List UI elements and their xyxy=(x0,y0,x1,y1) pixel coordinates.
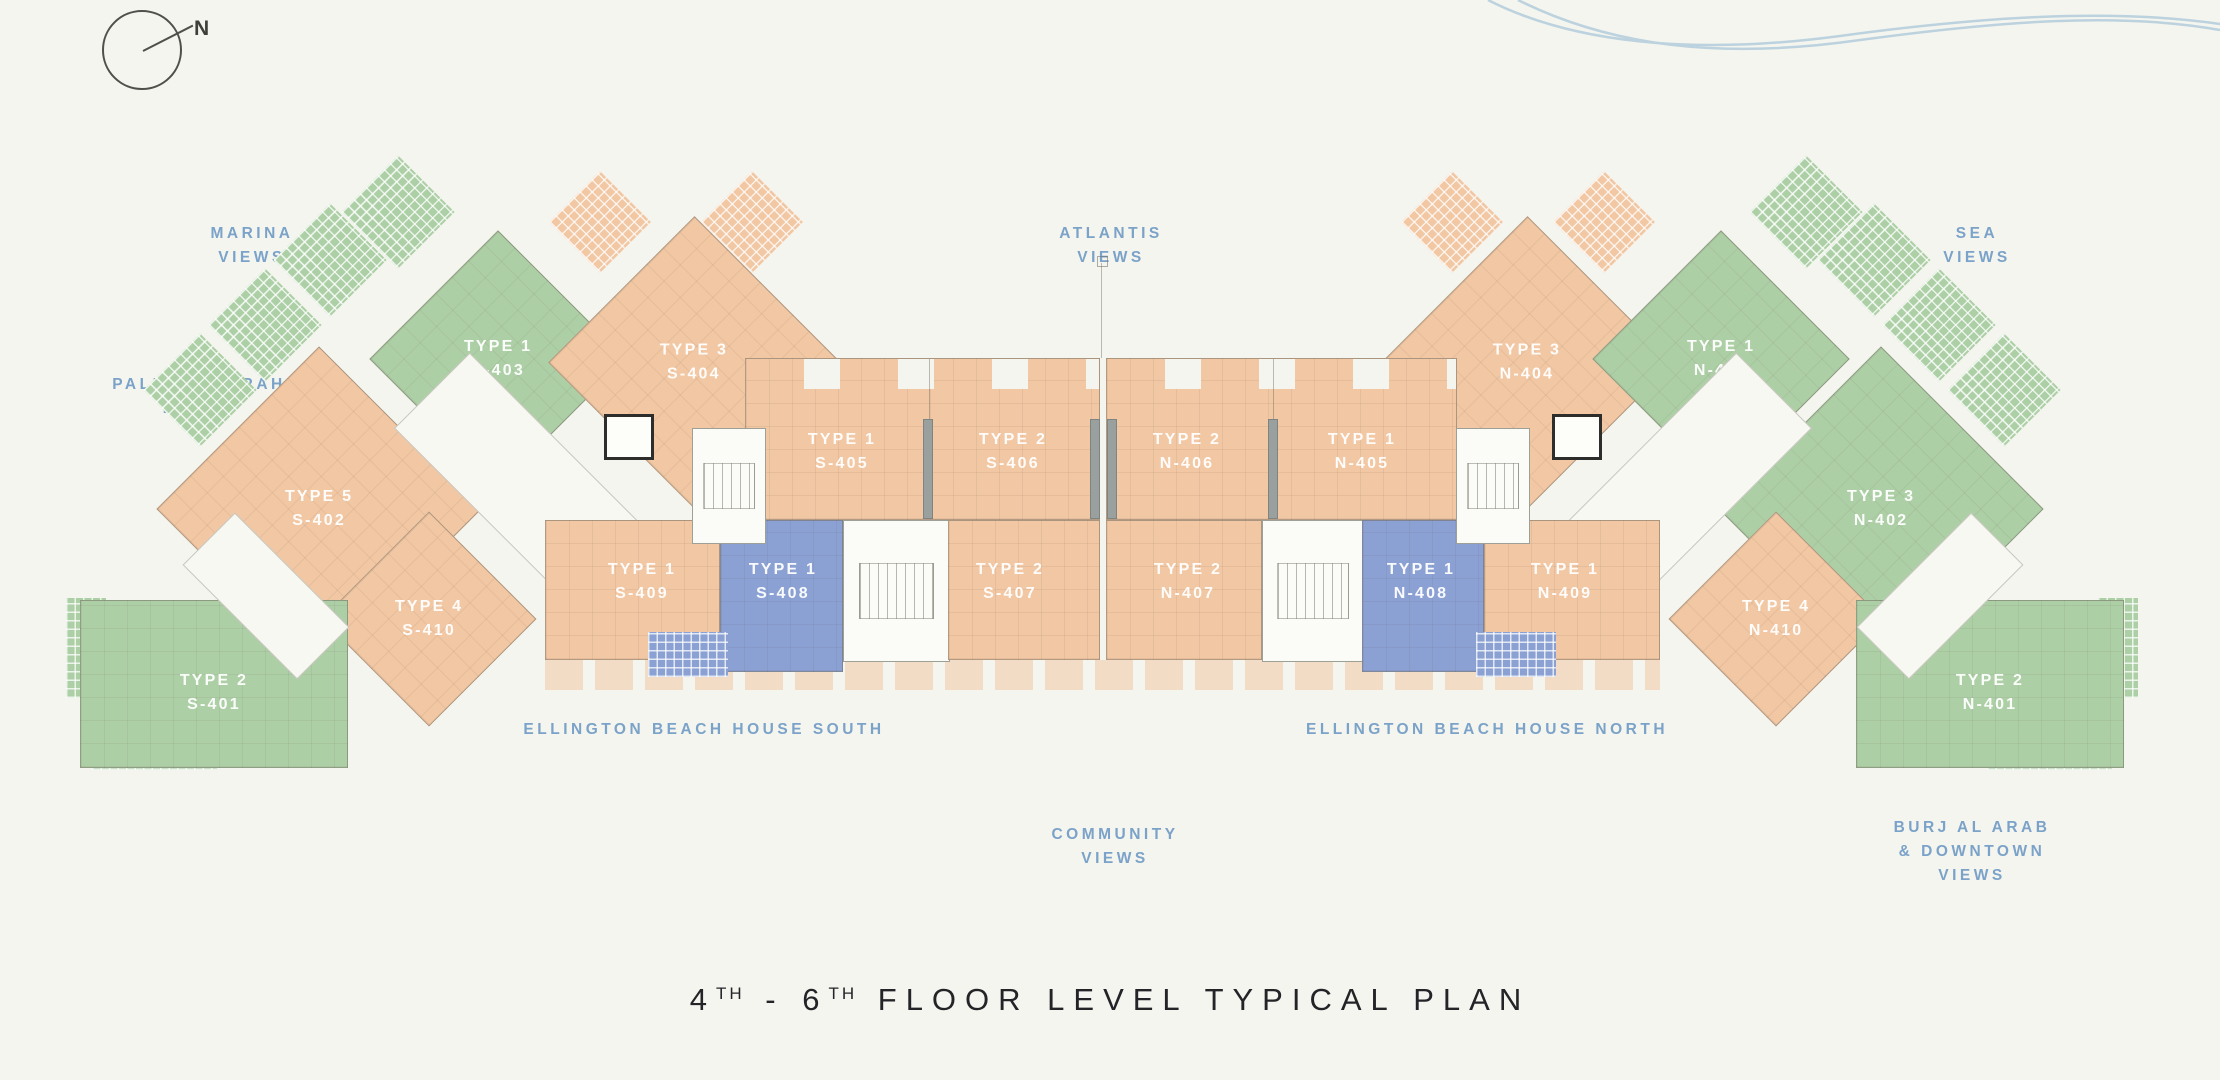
unit-label: TYPE 2S-407 xyxy=(976,558,1044,606)
unit-label: TYPE 3S-404 xyxy=(660,339,728,387)
unit-label: TYPE 1S-409 xyxy=(608,558,676,606)
elevator-shaft xyxy=(1268,419,1278,519)
balcony-checker xyxy=(549,171,651,273)
center-axis-marker xyxy=(1097,256,1108,267)
compass-north-label: N xyxy=(194,17,210,41)
unit-label: TYPE 1S-405 xyxy=(808,428,876,476)
view-label-burj-al-arab: BURJ AL ARAB & DOWNTOWN VIEWS xyxy=(1894,816,2051,888)
unit-label: TYPE 2N-407 xyxy=(1154,558,1222,606)
stair-core xyxy=(692,428,766,544)
coastline-wave xyxy=(1460,0,2220,64)
unit-label: TYPE 1N-408 xyxy=(1387,558,1455,606)
unit-label: TYPE 2S-401 xyxy=(180,669,248,717)
center-axis-line xyxy=(1101,263,1102,358)
service-box xyxy=(1552,414,1602,460)
stair-core xyxy=(1456,428,1530,544)
unit-label: TYPE 2N-401 xyxy=(1956,669,2024,717)
balcony-checker xyxy=(648,632,728,677)
unit-label: TYPE 1N-409 xyxy=(1531,558,1599,606)
terrace-notches xyxy=(1107,359,1456,389)
elevator-shaft xyxy=(923,419,933,519)
unit-label: TYPE 4S-410 xyxy=(395,595,463,643)
unit-label: TYPE 5S-402 xyxy=(285,485,353,533)
unit-label: TYPE 3N-404 xyxy=(1493,339,1561,387)
unit-label: TYPE 4N-410 xyxy=(1742,595,1810,643)
unit-label: TYPE 2N-406 xyxy=(1153,428,1221,476)
unit-label: TYPE 1S-408 xyxy=(749,558,817,606)
floor-plan-page: N MARINA VIEWS ATLANTIS VIEWS SEA VIEWS … xyxy=(0,0,2220,1080)
stairs-icon xyxy=(1277,563,1349,619)
stairs-icon xyxy=(1467,463,1519,509)
balcony-checker xyxy=(1476,632,1556,677)
elevator-shaft xyxy=(1107,419,1117,519)
stair-core xyxy=(843,520,950,662)
view-label-community: COMMUNITY VIEWS xyxy=(1051,823,1178,871)
stairs-icon xyxy=(859,563,935,619)
view-label-sea: SEA VIEWS xyxy=(1943,222,2010,270)
stair-core xyxy=(1262,520,1364,662)
terrace-notches xyxy=(746,359,1099,389)
unit-label: TYPE 1N-405 xyxy=(1328,428,1396,476)
stairs-icon xyxy=(703,463,755,509)
unit-label: TYPE 3N-402 xyxy=(1847,485,1915,533)
building-label-south: ELLINGTON BEACH HOUSE SOUTH xyxy=(523,718,884,742)
page-title: 4TH - 6TH FLOOR LEVEL TYPICAL PLAN xyxy=(0,982,2220,1018)
elevator-shaft xyxy=(1090,419,1100,519)
unit-label: TYPE 2S-406 xyxy=(979,428,1047,476)
building-label-north: ELLINGTON BEACH HOUSE NORTH xyxy=(1306,718,1668,742)
view-label-atlantis: ATLANTIS VIEWS xyxy=(1059,222,1162,270)
service-box xyxy=(604,414,654,460)
